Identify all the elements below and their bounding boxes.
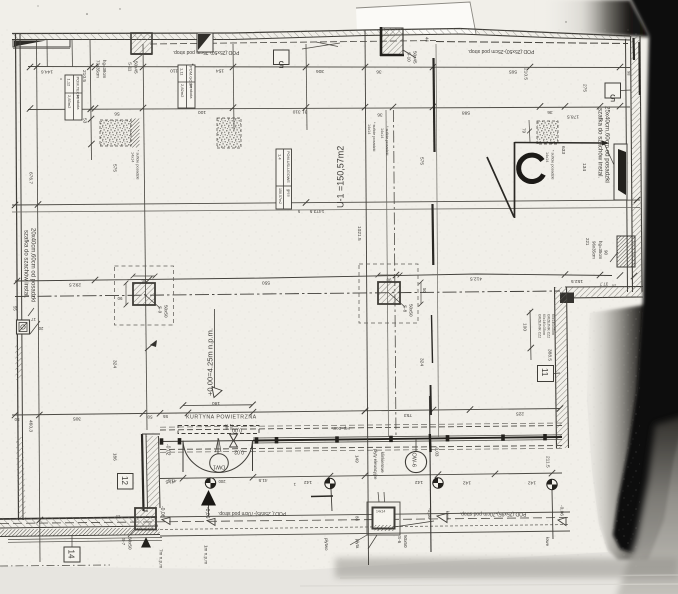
svg-text:GRZEJNIK CZ2: GRZEJNIK CZ2 xyxy=(547,314,551,338)
svg-text:306: 306 xyxy=(316,68,324,74)
svg-text:łowe: łowe xyxy=(545,537,550,547)
svg-text:36: 36 xyxy=(547,109,553,115)
svg-text:142: 142 xyxy=(415,479,423,485)
svg-text:292.5: 292.5 xyxy=(69,282,81,288)
svg-text:90: 90 xyxy=(386,278,391,283)
svg-text:149: 149 xyxy=(355,455,360,463)
svg-text:* suficie posadzki: * suficie posadzki xyxy=(372,122,376,151)
svg-text:klinkierowe: klinkierowe xyxy=(380,452,385,473)
svg-text:324: 324 xyxy=(112,360,118,368)
svg-text:+0,00=4.25m n.p.m.: +0,00=4.25m n.p.m. xyxy=(206,328,215,396)
svg-text:17: 17 xyxy=(31,317,36,322)
svg-text:5: 5 xyxy=(609,92,615,103)
svg-text:565: 565 xyxy=(509,69,517,75)
svg-text:POM.USLUGOWE: POM.USLUGOWE xyxy=(286,151,290,183)
svg-text:14: 14 xyxy=(67,550,76,559)
svg-text:144.6: 144.6 xyxy=(41,69,53,75)
svg-text:15: 15 xyxy=(115,515,120,520)
svg-text:41.5: 41.5 xyxy=(258,478,267,483)
svg-text:588: 588 xyxy=(462,110,470,116)
svg-text:1,4: 1,4 xyxy=(278,154,283,160)
svg-text:575: 575 xyxy=(112,164,118,172)
svg-text:-0,06: -0,06 xyxy=(159,506,165,518)
svg-text:46: 46 xyxy=(425,37,430,42)
svg-text:56: 56 xyxy=(114,111,120,117)
svg-text:2,82m2: 2,82m2 xyxy=(180,84,185,98)
svg-text:GRZEJNIK CZ2: GRZEJNIK CZ2 xyxy=(538,314,542,338)
svg-text:7m n.p.m: 7m n.p.m xyxy=(159,549,164,568)
svg-text:S-10: S-10 xyxy=(407,52,412,62)
svg-text:225: 225 xyxy=(516,411,524,417)
svg-text:5: 5 xyxy=(278,58,284,69)
svg-text:110: 110 xyxy=(170,68,178,74)
svg-text:POD.(25x95)-70cm pod strop.: POD.(25x95)-70cm pod strop. xyxy=(460,511,527,517)
svg-text:DW1: DW1 xyxy=(213,464,225,470)
svg-text:0,00: 0,00 xyxy=(232,427,242,433)
svg-text:388.5: 388.5 xyxy=(547,349,553,361)
svg-text:terakota: terakota xyxy=(189,84,194,99)
svg-text:50x50: 50x50 xyxy=(403,535,408,548)
svg-text:50: 50 xyxy=(147,415,152,420)
svg-text:14x14: 14x14 xyxy=(545,152,549,162)
svg-text:terakota: terakota xyxy=(76,95,81,110)
svg-text:-0,02: -0,02 xyxy=(234,449,246,455)
svg-text:79: 79 xyxy=(522,128,527,134)
svg-text:186: 186 xyxy=(113,453,118,461)
svg-text:50: 50 xyxy=(14,417,19,422)
svg-text:152.5: 152.5 xyxy=(571,278,583,284)
svg-text:POD.(25x50)-25cm pod strop.: POD.(25x50)-25cm pod strop. xyxy=(468,48,535,54)
svg-text:1021.5: 1021.5 xyxy=(356,226,362,241)
svg-text:szafka do szachów instal.: szafka do szachów instal. xyxy=(23,230,29,298)
svg-text:60x140x35cm: 60x140x35cm xyxy=(542,314,546,335)
svg-text:50x50: 50x50 xyxy=(409,304,414,317)
svg-text:1473.5: 1473.5 xyxy=(309,208,324,214)
svg-text:14x14: 14x14 xyxy=(376,510,385,514)
svg-text:S-6: S-6 xyxy=(397,536,402,544)
svg-text:41.5: 41.5 xyxy=(167,479,176,484)
svg-text:36: 36 xyxy=(377,112,383,118)
svg-text:1m n.p.m: 1m n.p.m xyxy=(204,545,209,564)
svg-text:55: 55 xyxy=(13,306,18,311)
svg-text:POD.( 25x95)-70cm pod strop.: POD.( 25x95)-70cm pod strop. xyxy=(218,510,286,516)
svg-text:36: 36 xyxy=(376,69,382,75)
svg-text:100: 100 xyxy=(522,323,528,331)
svg-text:50x45: 50x45 xyxy=(413,51,418,64)
svg-text:575: 575 xyxy=(419,157,425,165)
svg-text:186: 186 xyxy=(225,424,229,430)
svg-text:90: 90 xyxy=(117,296,122,301)
svg-text:324: 324 xyxy=(419,358,425,366)
svg-text:20: 20 xyxy=(611,284,616,289)
svg-text:hg=35cm: hg=35cm xyxy=(598,241,603,260)
svg-text:14x14: 14x14 xyxy=(367,124,371,134)
svg-text:178.5: 178.5 xyxy=(567,114,579,120)
svg-text:-0,03: -0,03 xyxy=(435,446,440,457)
svg-text:180: 180 xyxy=(212,400,220,406)
svg-text:50x45: 50x45 xyxy=(134,61,139,74)
svg-text:S-7: S-7 xyxy=(121,538,126,546)
svg-text:-0,06: -0,06 xyxy=(559,505,565,516)
svg-text:S-8: S-8 xyxy=(403,305,408,313)
svg-text:11: 11 xyxy=(540,368,549,377)
svg-text:633: 633 xyxy=(560,146,566,154)
svg-text:154: 154 xyxy=(216,68,224,74)
svg-text:142: 142 xyxy=(463,480,471,486)
svg-text:50: 50 xyxy=(422,288,427,293)
svg-text:14x14: 14x14 xyxy=(131,152,135,162)
svg-text:221: 221 xyxy=(585,238,590,246)
svg-text:50x50: 50x50 xyxy=(164,305,169,318)
svg-text:* suficie posadzki: * suficie posadzki xyxy=(136,150,140,179)
svg-text:305: 305 xyxy=(73,416,81,422)
svg-text:1,11: 1,11 xyxy=(180,68,185,76)
svg-text:S-9: S-9 xyxy=(158,306,163,314)
svg-text:OW-6: OW-6 xyxy=(411,453,417,468)
svg-text:14x14: 14x14 xyxy=(380,128,384,138)
svg-text:460,3: 460,3 xyxy=(28,420,34,432)
svg-text:676.7: 676.7 xyxy=(28,172,34,184)
svg-text:211.5: 211.5 xyxy=(545,456,551,468)
svg-text:412.5: 412.5 xyxy=(470,276,482,282)
svg-text:-0,02: -0,02 xyxy=(165,444,171,456)
svg-text:* suficie posadzki: * suficie posadzki xyxy=(385,126,389,155)
svg-text:275: 275 xyxy=(582,84,588,92)
svg-text:96x35cm: 96x35cm xyxy=(592,241,597,259)
svg-text:90: 90 xyxy=(604,250,609,255)
svg-text:płytwo: płytwo xyxy=(324,538,329,551)
svg-text:Hp=0cm: Hp=0cm xyxy=(332,426,349,431)
svg-text:550: 550 xyxy=(262,280,270,286)
svg-text:210.5: 210.5 xyxy=(523,68,529,80)
svg-text:37.7: 37.7 xyxy=(599,282,608,287)
svg-text:1,12: 1,12 xyxy=(67,79,72,88)
svg-text:60x140x35cm: 60x140x35cm xyxy=(551,314,555,335)
svg-text:88: 88 xyxy=(355,516,360,521)
svg-text:U-1 =150,57m2: U-1 =150,57m2 xyxy=(336,146,346,208)
svg-text:31 310: 31 310 xyxy=(292,109,307,115)
svg-text:12: 12 xyxy=(120,476,129,485)
svg-text:73x35cm: 73x35cm xyxy=(96,60,101,78)
svg-text:płyty elewacyjne: płyty elewacyjne xyxy=(373,449,378,480)
svg-text:753: 753 xyxy=(404,412,412,418)
svg-text:150,57m2: 150,57m2 xyxy=(278,188,282,204)
svg-text:KURTYNA POWIETRZNA: KURTYNA POWIETRZNA xyxy=(186,415,257,421)
svg-text:* suficie posadzki: * suficie posadzki xyxy=(551,150,555,179)
svg-text:hg=38cm: hg=38cm xyxy=(102,60,107,79)
svg-text:142: 142 xyxy=(304,479,312,485)
svg-text:142: 142 xyxy=(528,480,536,486)
svg-text:gres: gres xyxy=(286,189,291,197)
svg-text:2,83m2: 2,83m2 xyxy=(67,95,72,109)
svg-text:55: 55 xyxy=(163,414,168,419)
svg-text:134: 134 xyxy=(581,163,587,171)
svg-text:98: 98 xyxy=(627,71,632,76)
svg-text:200: 200 xyxy=(218,479,226,484)
svg-text:96: 96 xyxy=(141,279,146,284)
svg-text:50x50: 50x50 xyxy=(128,537,133,550)
svg-text:20x40cm,60cm od posadzki: 20x40cm,60cm od posadzki xyxy=(30,228,36,302)
svg-text:100: 100 xyxy=(198,109,206,115)
